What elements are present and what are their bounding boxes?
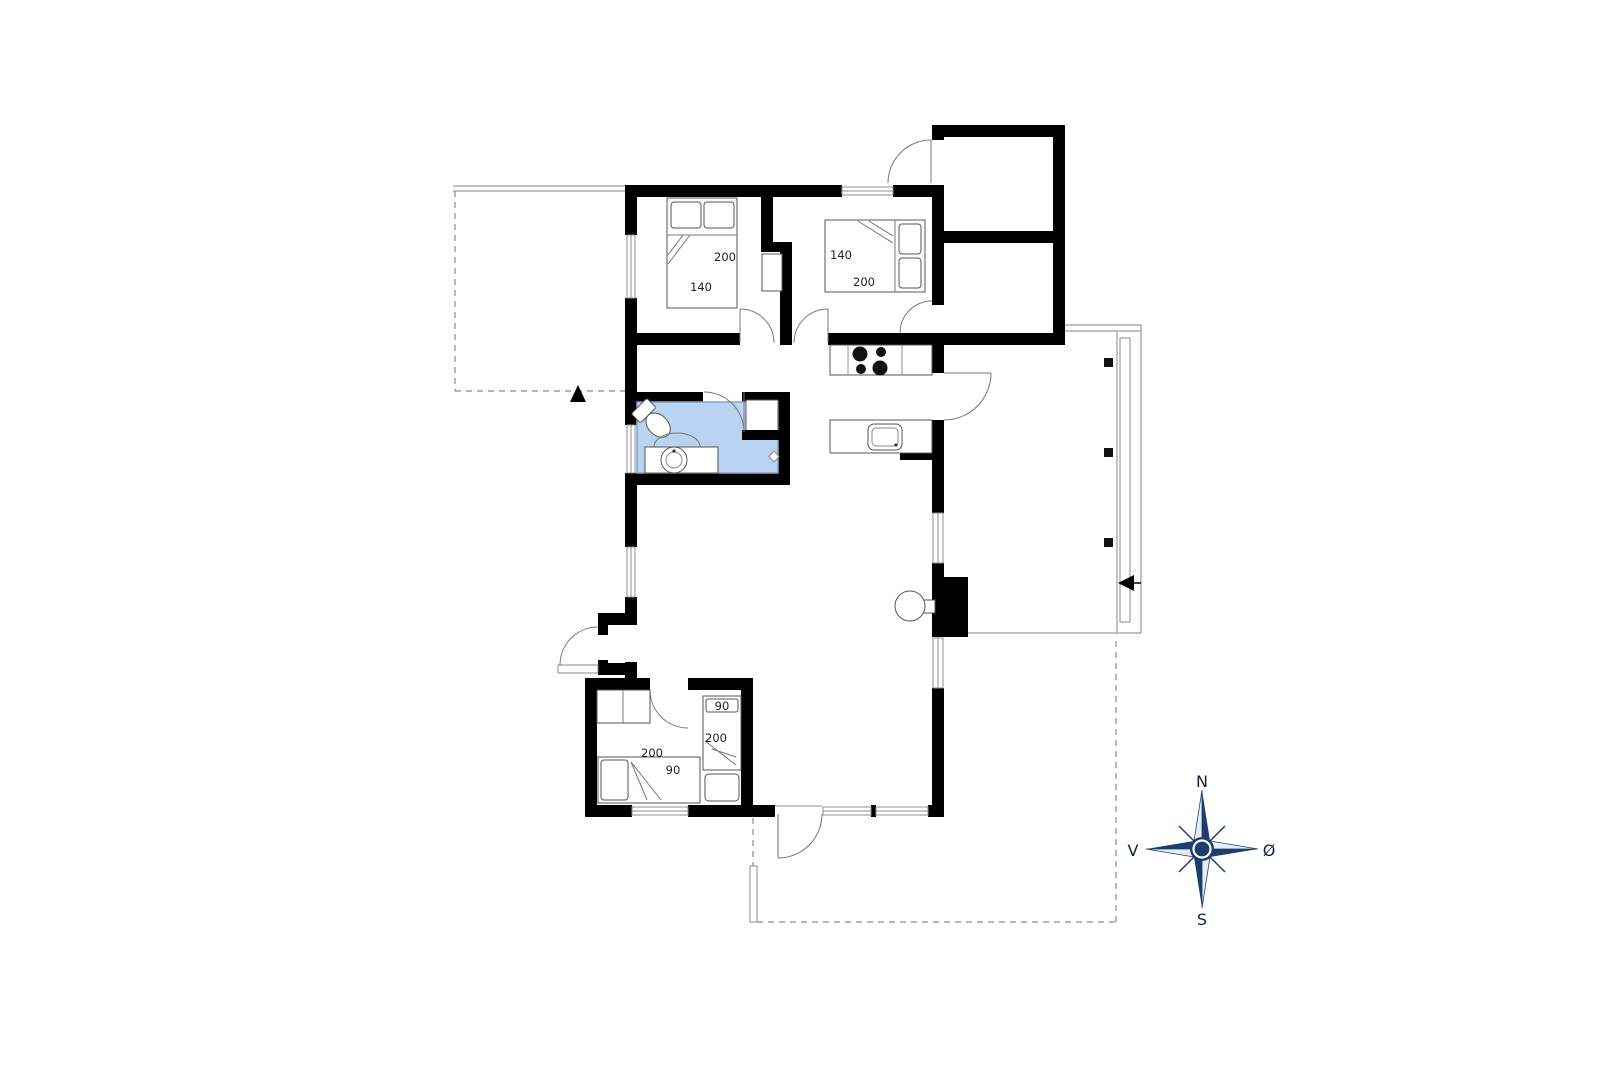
deck-post [1104, 538, 1113, 547]
carport-entry-arrow [570, 385, 586, 402]
compass-south-label: S [1197, 910, 1207, 929]
deck-post [1104, 448, 1113, 457]
bedroom2-door-arc [794, 309, 828, 343]
entry-door-arc [888, 140, 931, 183]
bed-length-label: 200 [641, 746, 663, 760]
bedside-table [705, 774, 739, 801]
window-bedroom1-west [627, 235, 635, 298]
kitchen [830, 345, 932, 453]
bed-width-label: 140 [830, 248, 852, 262]
window-living-west [627, 547, 635, 597]
deck [968, 325, 1141, 633]
window-living-south-1 [823, 807, 871, 815]
bedroom3-door-arc [650, 690, 688, 728]
hall-wardrobe [762, 254, 782, 291]
bathroom-cabinet [746, 400, 778, 431]
kitchen-sink-counter [830, 420, 932, 453]
window-top-wall [842, 187, 893, 195]
fireplace [895, 577, 968, 637]
window-living-east-lower [933, 638, 943, 688]
single-bed-horizontal [598, 757, 700, 803]
bed-length-label: 200 [853, 275, 875, 289]
bed-width-label: 90 [715, 699, 730, 713]
window-bedroom3-south [632, 807, 688, 815]
bed-length-label: 200 [705, 731, 727, 745]
floorplan-drawing: 200 140 140 200 90 200 [0, 0, 1600, 1066]
carport-outline [453, 186, 625, 402]
window-living-south-2 [876, 807, 928, 815]
window-living-east-upper [933, 513, 943, 563]
south-door-arc [778, 814, 822, 858]
kitchen-stove-counter [830, 345, 932, 376]
compass-west-label: V [1128, 841, 1139, 860]
floorplan-page: 200 140 140 200 90 200 [0, 0, 1600, 1066]
vestibule-door-leaf [558, 665, 598, 673]
wardrobe [597, 690, 650, 723]
terrace-door-arc [944, 373, 991, 420]
compass-north-label: N [1196, 772, 1208, 791]
vestibule-door-arc [560, 627, 598, 665]
bed-width-label: 140 [690, 280, 712, 294]
compass-east-label: Ø [1263, 841, 1276, 860]
bed-width-label: 90 [666, 763, 681, 777]
bedroom1-door-arc [740, 309, 774, 343]
bathroom [631, 392, 790, 473]
annex-door-arc [900, 301, 932, 333]
window-bathroom-west [627, 425, 635, 473]
bedroom-3: 90 200 200 90 [597, 690, 741, 803]
compass-rose: N S V Ø [1128, 772, 1276, 929]
bed-length-label: 200 [714, 250, 736, 264]
terrace-post [750, 866, 757, 922]
wood-stove [895, 591, 925, 621]
bedroom-2: 140 200 [825, 220, 925, 292]
deck-post [1104, 358, 1113, 367]
